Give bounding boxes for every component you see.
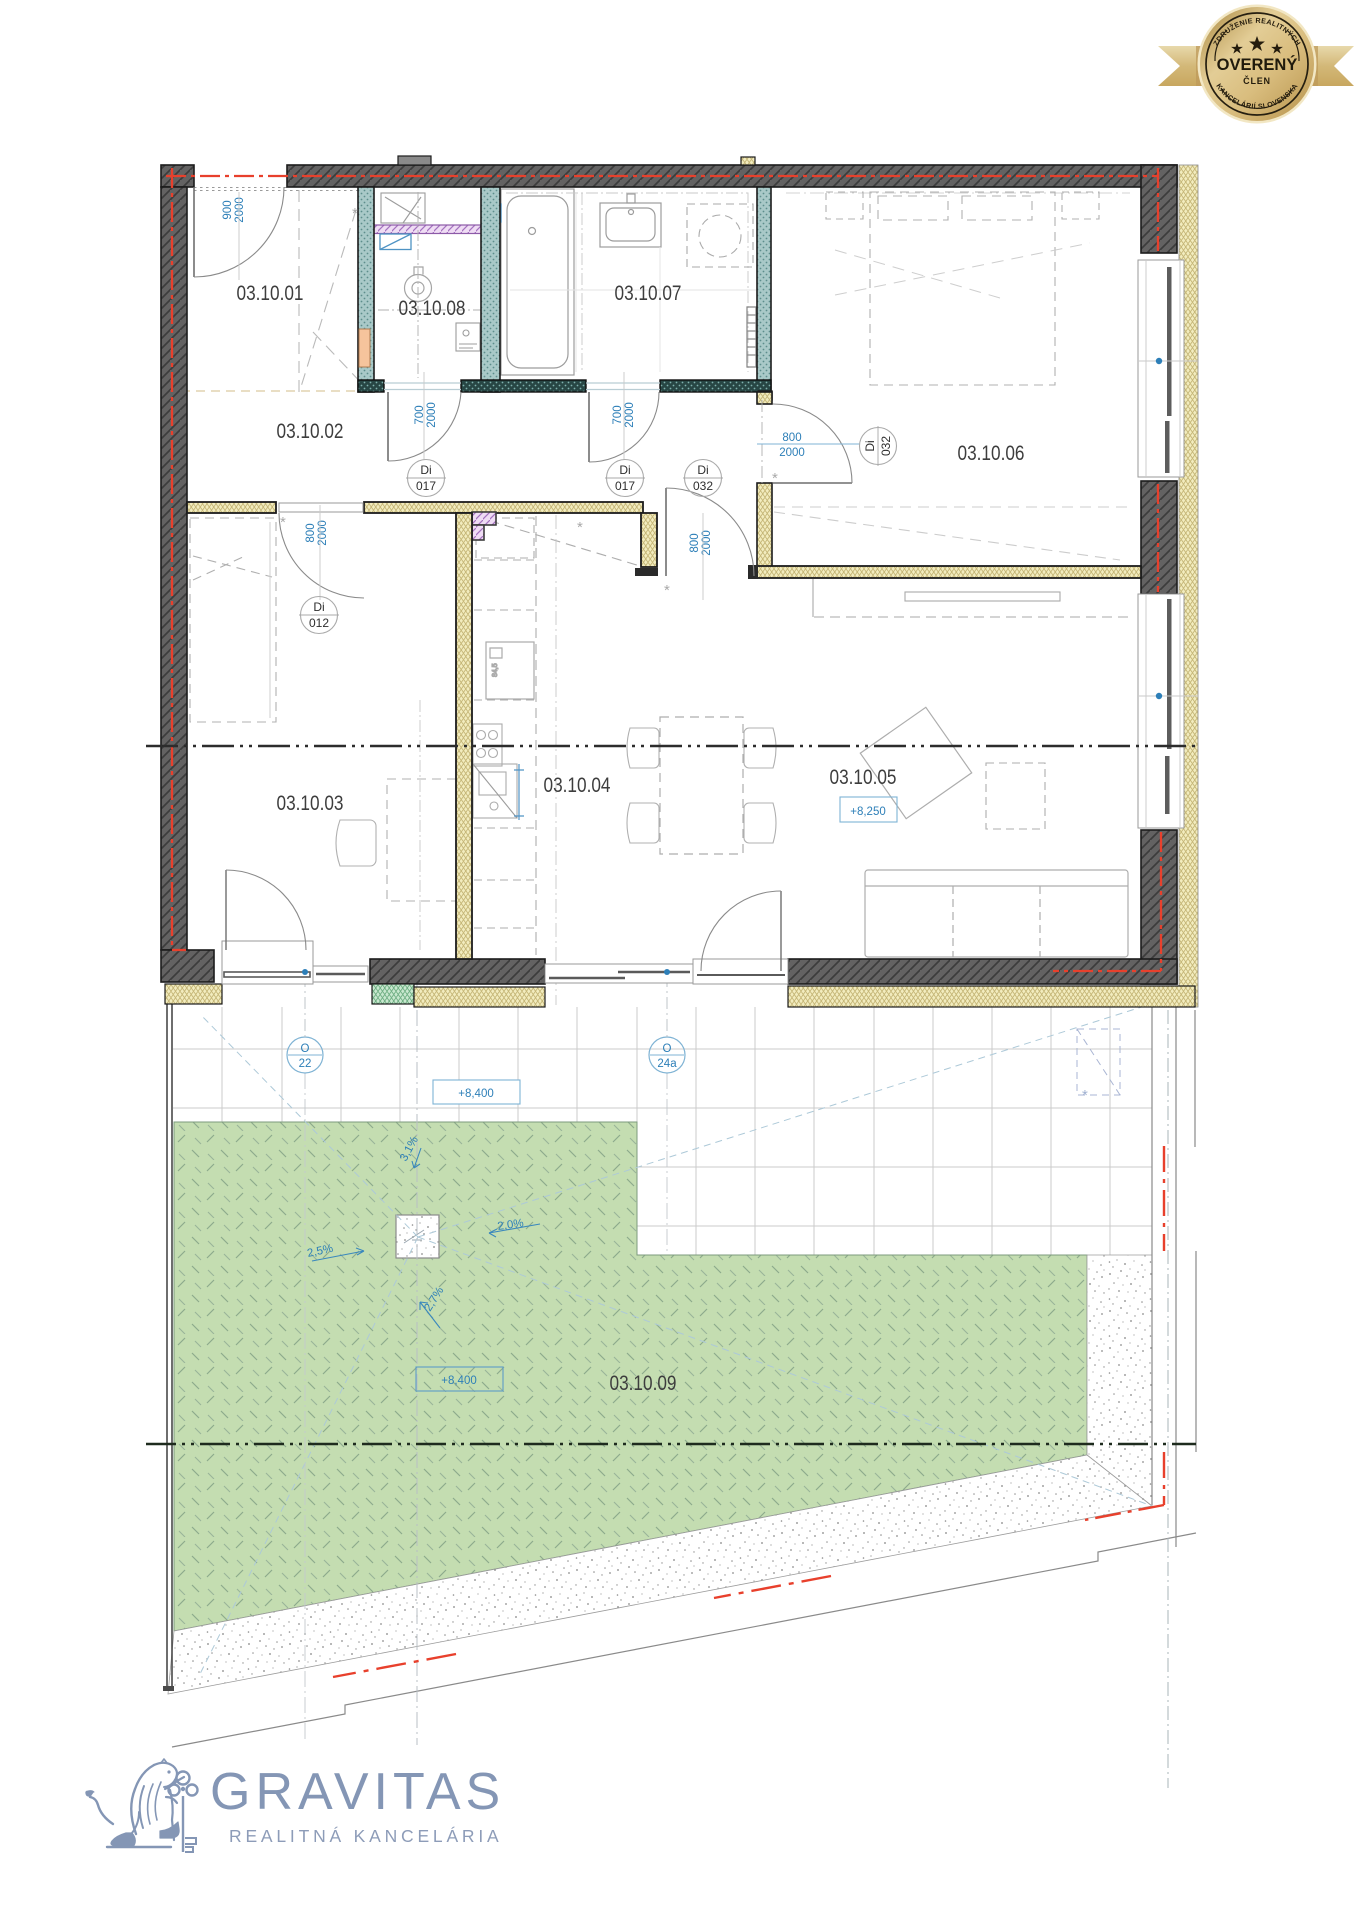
svg-text:*: * <box>772 470 778 487</box>
svg-text:032: 032 <box>693 479 713 493</box>
svg-text:GRAVITAS: GRAVITAS <box>210 1763 505 1821</box>
svg-text:03.10.01: 03.10.01 <box>237 282 304 305</box>
svg-text:OVERENÝ: OVERENÝ <box>1217 55 1298 74</box>
svg-text:012: 012 <box>309 616 329 630</box>
svg-text:*: * <box>352 205 358 222</box>
svg-text:017: 017 <box>615 479 635 493</box>
svg-text:REALITNÁ KANCELÁRIA: REALITNÁ KANCELÁRIA <box>229 1826 503 1846</box>
svg-text:03.10.05: 03.10.05 <box>830 766 897 789</box>
svg-text:Di: Di <box>697 463 708 477</box>
svg-text:*: * <box>577 519 583 536</box>
svg-text:03.10.06: 03.10.06 <box>958 442 1025 465</box>
svg-text:+8,250: +8,250 <box>850 806 886 818</box>
svg-text:24a: 24a <box>657 1058 677 1070</box>
svg-text:800: 800 <box>782 432 801 444</box>
svg-text:03.10.04: 03.10.04 <box>544 774 611 797</box>
svg-text:84,5: 84,5 <box>492 663 499 677</box>
svg-text:Di: Di <box>619 463 630 477</box>
svg-text:*: * <box>280 514 286 531</box>
svg-text:22: 22 <box>299 1058 312 1070</box>
svg-text:03.10.02: 03.10.02 <box>277 420 344 443</box>
svg-text:03.10.08: 03.10.08 <box>399 297 466 320</box>
svg-text:032: 032 <box>879 436 893 456</box>
svg-text:Di: Di <box>313 600 324 614</box>
svg-text:O: O <box>301 1043 310 1055</box>
svg-text:03.10.03: 03.10.03 <box>277 792 344 815</box>
svg-text:7002000: 7002000 <box>414 402 438 428</box>
svg-text:9002000: 9002000 <box>222 197 246 223</box>
svg-text:+8,400: +8,400 <box>441 1375 477 1387</box>
svg-text:03.10.09: 03.10.09 <box>610 1372 677 1395</box>
svg-text:ČLEN: ČLEN <box>1243 75 1271 86</box>
svg-text:8002000: 8002000 <box>305 520 329 546</box>
svg-text:017: 017 <box>416 479 436 493</box>
svg-text:+8,400: +8,400 <box>458 1088 494 1100</box>
svg-text:2000: 2000 <box>779 447 805 459</box>
svg-text:Di: Di <box>863 440 877 451</box>
svg-text:*: * <box>664 582 670 599</box>
svg-text:O: O <box>663 1043 672 1055</box>
svg-text:Di: Di <box>420 463 431 477</box>
svg-text:8002000: 8002000 <box>689 530 713 556</box>
svg-text:03.10.07: 03.10.07 <box>615 282 682 305</box>
